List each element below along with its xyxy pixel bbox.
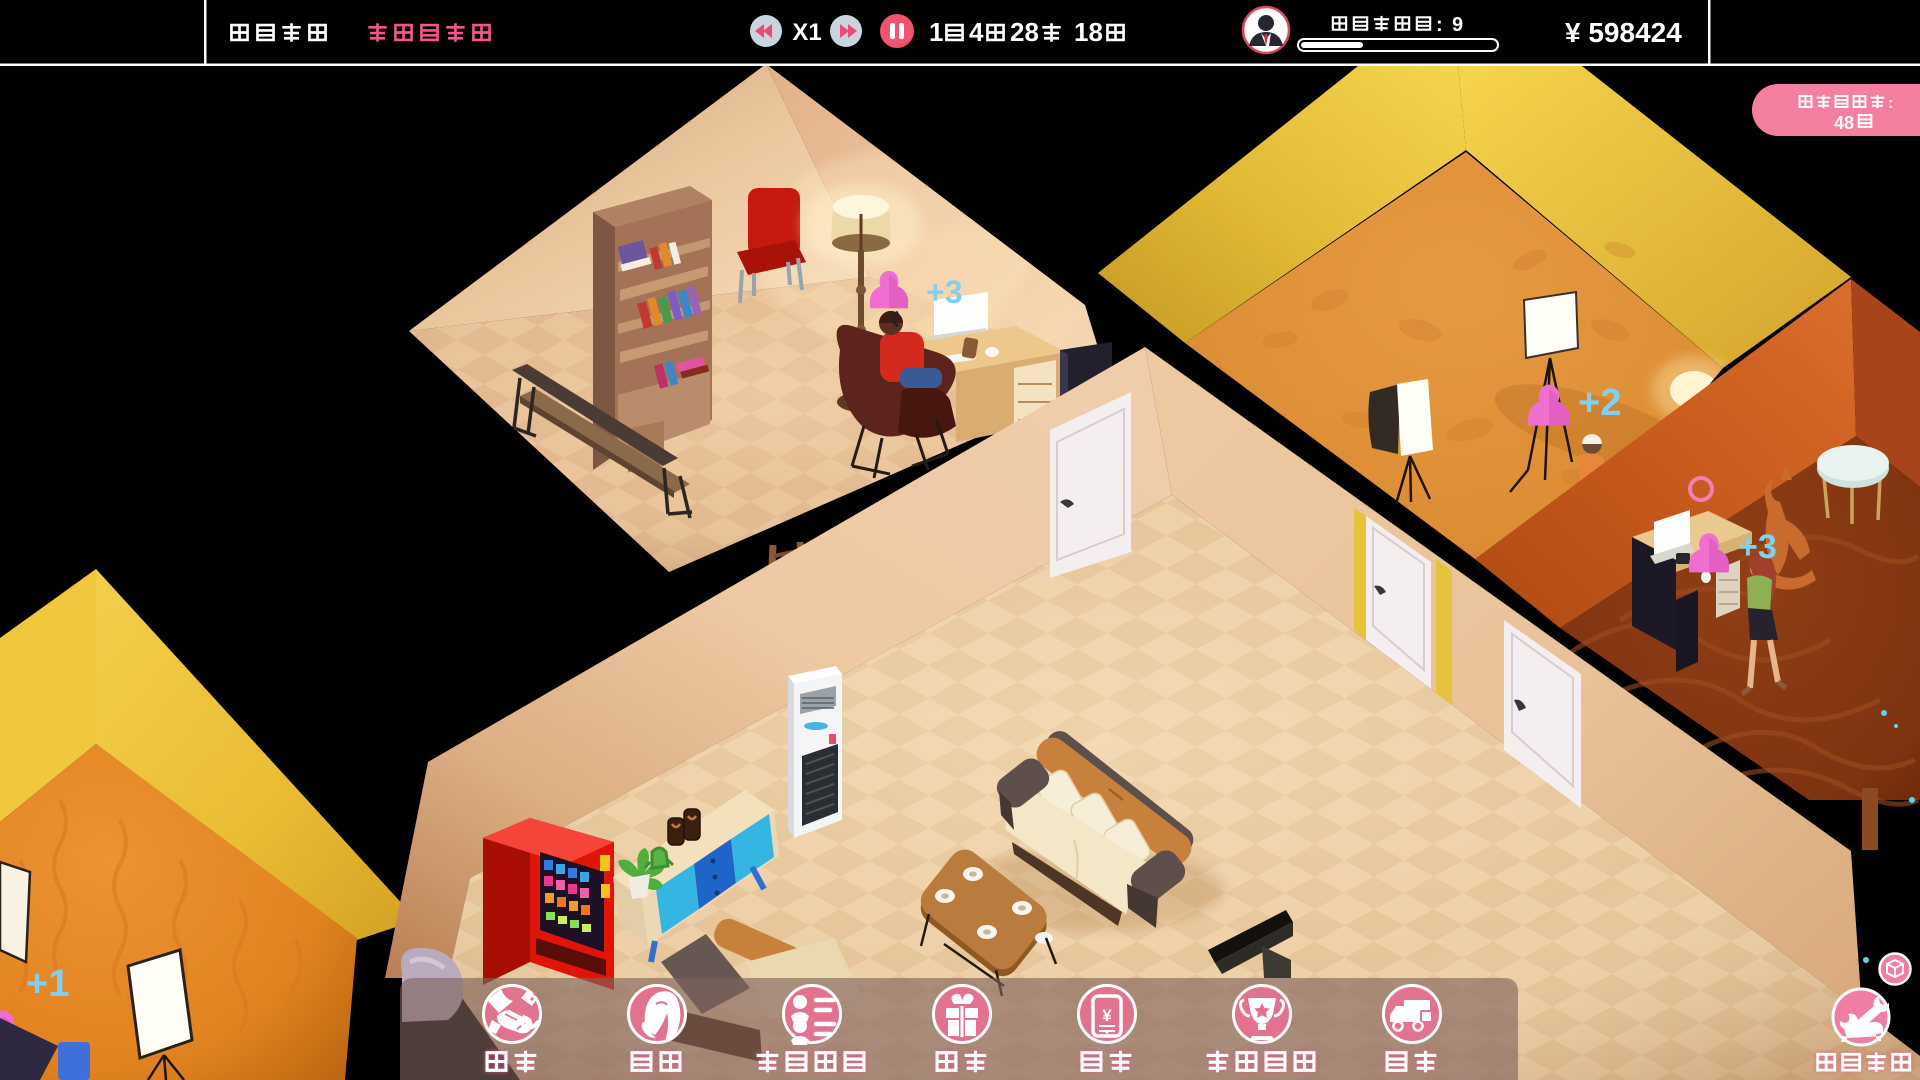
svg-text:+3: +3	[926, 274, 962, 310]
svg-text:1: 1	[929, 17, 943, 47]
svg-text:¥ 598424: ¥ 598424	[1565, 17, 1682, 48]
svg-text:X1: X1	[792, 19, 821, 46]
svg-text:9: 9	[1452, 14, 1463, 36]
svg-text:28: 28	[1010, 17, 1039, 47]
svg-text:+1: +1	[26, 963, 69, 1005]
svg-text:¥: ¥	[1102, 1006, 1112, 1025]
svg-text:+2: +2	[1578, 382, 1621, 424]
svg-text:4: 4	[969, 17, 984, 47]
svg-text::: :	[1888, 95, 1893, 112]
svg-text::: :	[1436, 14, 1443, 36]
svg-text:+3: +3	[1738, 528, 1777, 566]
svg-text:18: 18	[1074, 17, 1103, 47]
svg-text:48: 48	[1834, 113, 1854, 133]
